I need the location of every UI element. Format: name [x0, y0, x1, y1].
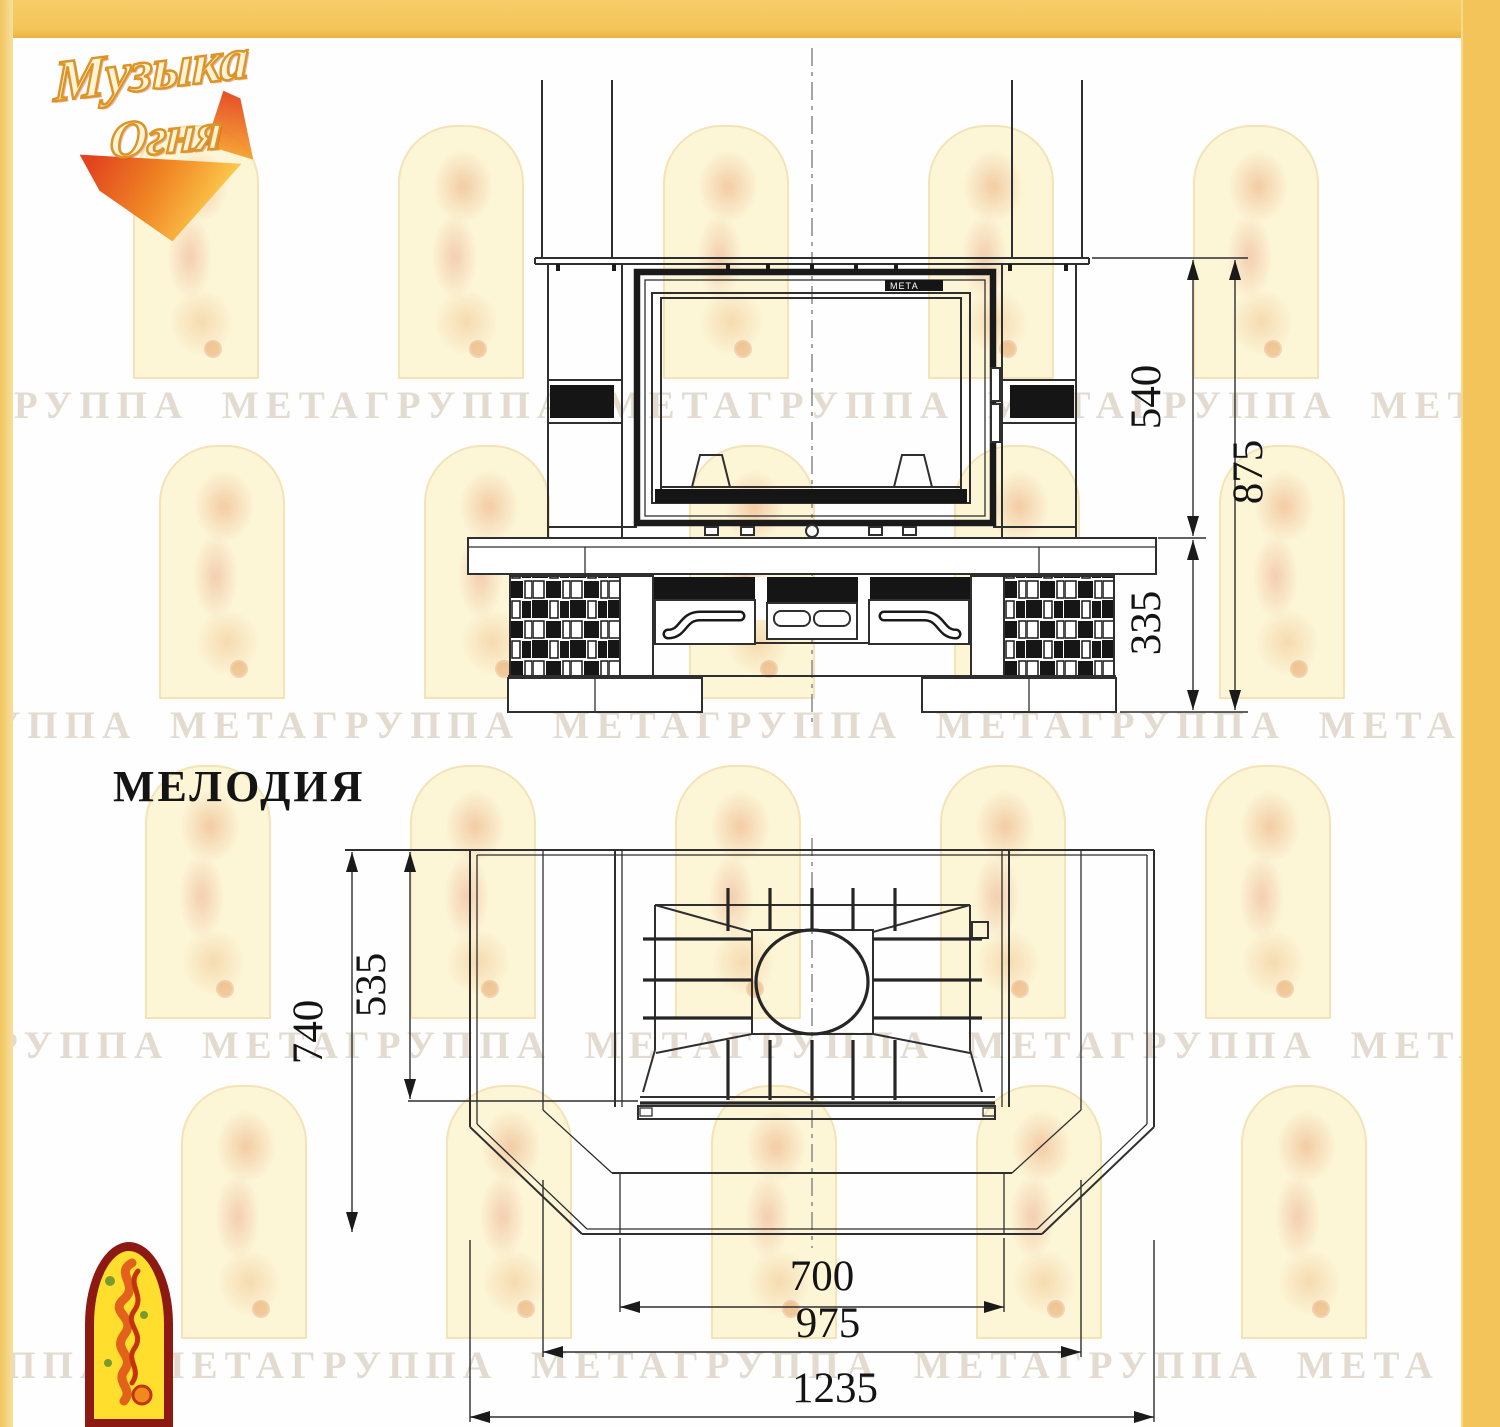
- svg-text:535: 535: [348, 953, 395, 1018]
- vent-row: [705, 525, 916, 537]
- dimension-535: 535: [348, 852, 638, 1101]
- cast-panel-right: [869, 600, 969, 644]
- andiron-left: [692, 455, 730, 487]
- collar-stub: [972, 922, 988, 938]
- front-dimensions: 540 335 875: [1092, 258, 1272, 712]
- svg-text:540: 540: [1123, 365, 1170, 430]
- svg-text:335: 335: [1123, 591, 1170, 656]
- svg-text:875: 875: [1225, 440, 1272, 505]
- plinth-left: [508, 678, 702, 712]
- left-column: [548, 264, 622, 538]
- cast-panel-center: [767, 603, 857, 639]
- fire-dancer-figure: [94, 1251, 164, 1419]
- svg-text:740: 740: [285, 1000, 332, 1065]
- marble-block: [1010, 385, 1074, 418]
- firebox-door: МЕТА: [637, 272, 1000, 523]
- plan-view: 740 535 700: [285, 838, 1154, 1423]
- svg-text:1235: 1235: [792, 1365, 878, 1412]
- dimension-540: 540: [1123, 260, 1199, 536]
- frame-band-left: [0, 0, 13, 1427]
- meta-brand-text: МЕТА: [890, 281, 919, 291]
- mantel-shelf: [468, 538, 1156, 574]
- marble-block: [550, 385, 614, 418]
- right-column: [1002, 264, 1076, 538]
- hearth-tray: [638, 1106, 995, 1119]
- svg-text:700: 700: [790, 1253, 855, 1300]
- plan-outer-shell: [345, 850, 1154, 1234]
- plinth-right: [922, 678, 1116, 712]
- frame-band-right: [1461, 0, 1500, 1427]
- door-handle: [991, 368, 1000, 401]
- svg-text:975: 975: [796, 1300, 861, 1347]
- andiron-right: [894, 455, 932, 487]
- base: [508, 576, 1116, 712]
- front-view: МЕТА: [468, 48, 1272, 726]
- plan-firebox: [638, 888, 995, 1119]
- muzyka-ognya-logo: Музыка Огня: [22, 40, 272, 240]
- door-handle: [991, 404, 1000, 442]
- page: ГРУППА МЕТАГРУППА МЕТАГРУППА МЕТАГРУППА …: [0, 0, 1500, 1427]
- brick-column-left: [510, 576, 620, 676]
- dimension-875: 875: [1225, 260, 1272, 710]
- brick-column-right: [1004, 576, 1114, 676]
- cast-panel-left: [655, 600, 755, 644]
- dimension-740: 740: [285, 852, 358, 1232]
- door-sill: [655, 489, 967, 503]
- heat-ribs: [643, 888, 982, 1100]
- vent-knob: [806, 525, 818, 537]
- model-title: МЕЛОДИЯ: [113, 761, 365, 812]
- logo-word-2: Огня: [108, 102, 223, 171]
- meta-arch-logo: [85, 1242, 173, 1427]
